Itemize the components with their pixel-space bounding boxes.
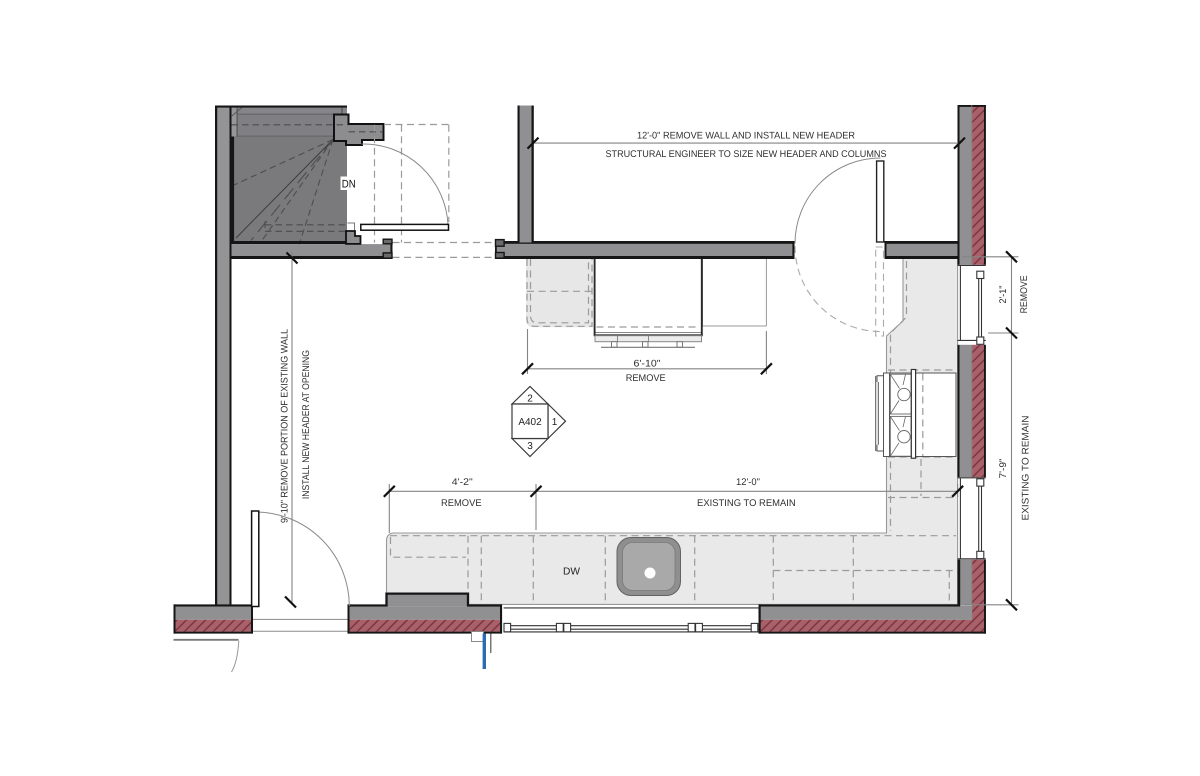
svg-text:2: 2 [527,394,533,405]
svg-text:EXISTING TO REMAIN: EXISTING TO REMAIN [697,498,796,509]
svg-text:DN: DN [342,178,356,190]
svg-text:REMOVE: REMOVE [441,498,482,509]
svg-text:REMOVE: REMOVE [626,373,666,384]
svg-text:A402: A402 [518,417,542,428]
svg-text:7'-9": 7'-9" [998,458,1009,479]
svg-text:3: 3 [527,441,533,452]
svg-text:4'-2": 4'-2" [452,477,474,488]
svg-text:STRUCTURAL ENGINEER TO SIZE NE: STRUCTURAL ENGINEER TO SIZE NEW HEADER A… [606,149,887,160]
svg-text:2'-1": 2'-1" [998,285,1009,304]
svg-text:9'-10" REMOVE PORTION OF EXIST: 9'-10" REMOVE PORTION OF EXISTING WALL [280,328,291,523]
svg-text:INSTALL NEW HEADER AT OPENING: INSTALL NEW HEADER AT OPENING [301,350,312,499]
svg-text:6'-10": 6'-10" [634,358,662,369]
svg-text:1: 1 [552,417,558,428]
svg-text:DW: DW [563,567,580,578]
svg-text:EXISTING TO REMAIN: EXISTING TO REMAIN [1021,416,1032,521]
svg-text:REMOVE: REMOVE [1019,275,1030,313]
svg-text:12'-0": 12'-0" [736,477,761,488]
svg-text:12'-0" REMOVE WALL AND INSTALL: 12'-0" REMOVE WALL AND INSTALL NEW HEADE… [637,130,855,141]
